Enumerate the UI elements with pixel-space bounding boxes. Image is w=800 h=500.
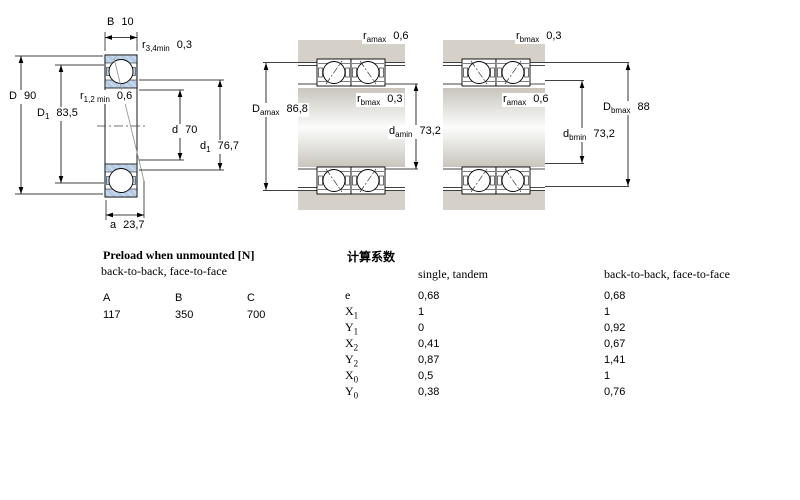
right-mounting-figure — [443, 40, 629, 210]
bearing-datasheet-drawing: B10 r3,4min0,3 D90 D183,5 r1,2 min0,6 d7… — [0, 0, 800, 500]
factors-row-e: e0,680,68 — [345, 286, 625, 302]
dim-label-dbmin: dbmin73,2 — [562, 128, 616, 142]
dim-label-Damax: Damax86,8 — [251, 103, 309, 117]
preload-table-subtitle: back-to-back, face-to-face — [101, 264, 227, 279]
dim-label-a: a23,7 — [109, 219, 146, 233]
factors-row-y1: Y100,92 — [345, 318, 625, 334]
dim-label-ramax-mid: ramax0,6 — [362, 30, 410, 44]
factors-col1-header: single, tandem — [418, 267, 488, 282]
factors-table-rows: e0,680,68 X111 Y100,92 X20,410,67 Y20,87… — [345, 286, 625, 398]
dim-label-r12min: r1,2 min0,6 — [79, 90, 133, 104]
dim-label-d1: d176,7 — [199, 140, 240, 154]
dim-label-d: d70 — [171, 124, 198, 138]
preload-col-b: B — [175, 292, 247, 304]
preload-value-a: 117 — [103, 309, 175, 321]
factors-row-y0: Y00,380,76 — [345, 382, 625, 398]
dim-label-B: B10 — [106, 16, 135, 30]
dim-label-Dbmax: Dbmax88 — [602, 101, 651, 115]
factors-row-x0: X00,51 — [345, 366, 625, 382]
preload-col-a: A — [103, 292, 175, 304]
factors-row-y2: Y20,871,41 — [345, 350, 625, 366]
preload-value-c: 700 — [247, 309, 319, 321]
dim-label-rbmax-right: rbmax0,3 — [515, 30, 563, 44]
factors-row-x2: X20,410,67 — [345, 334, 625, 350]
dim-label-D: D90 — [8, 90, 37, 104]
preload-table-value-row: 117350700 — [103, 309, 319, 321]
factors-row-x1: X111 — [345, 302, 625, 318]
dim-label-r34min: r3,4min0,3 — [141, 39, 193, 53]
dim-label-ramax-right: ramax0,6 — [502, 93, 550, 107]
factors-table-title: 计算系数 — [347, 248, 395, 265]
dim-label-rbmax-mid: rbmax0,3 — [356, 93, 404, 107]
preload-table-header-row: ABC — [103, 292, 319, 304]
preload-table-title: Preload when unmounted [N] — [103, 248, 254, 263]
preload-value-b: 350 — [175, 309, 247, 321]
dim-label-damin: damin73,2 — [388, 125, 442, 139]
preload-col-c: C — [247, 292, 319, 304]
factors-col2-header: back-to-back, face-to-face — [604, 267, 730, 282]
dim-label-D1: D183,5 — [36, 107, 79, 121]
